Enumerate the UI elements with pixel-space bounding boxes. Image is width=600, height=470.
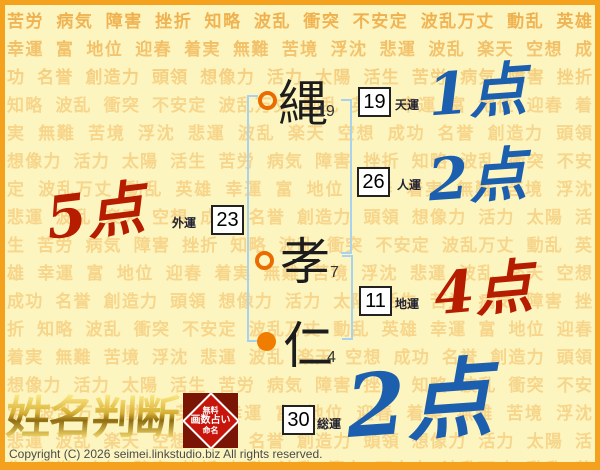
chiun-score: 4点 [432,257,535,323]
free-service-badge: 無料 画数占い 命名 [183,393,238,448]
chiun-label: 地運 [395,295,419,312]
copyright-text: Copyright (C) 2026 seimei.linkstudio.biz… [9,447,322,461]
chiun-bracket-line [342,255,353,340]
seimei-handan-result-page: 苦労 病気 障害 挫折 知略 波乱 衝突 不安定 波乱万丈 動乱 英雄 幸運 富… [0,0,600,470]
chiun-value-box: 11 [359,286,392,316]
badge-line-free: 無料 [203,406,219,415]
name-char-2: 孝 [280,237,330,287]
souun-value-box: 30 [282,405,315,435]
tenun-score: 1点 [426,60,528,125]
badge-line-meimei: 命名 [203,426,219,435]
char-marker-2 [255,251,274,270]
gaiun-label: 外運 [172,214,196,231]
tenun-label: 天運 [395,96,419,113]
gaiun-score: 5点 [43,178,148,248]
char-marker-1 [258,91,277,110]
souun-label: 総運 [317,415,341,432]
souun-score: 2点 [343,355,494,451]
jinun-score: 2点 [426,145,528,210]
jinun-value-box: 26 [357,167,390,197]
char-marker-3 [257,332,276,351]
jinun-bracket-line [341,99,352,254]
jinun-label: 人運 [397,176,421,193]
site-logo[interactable]: 姓名判断 [4,393,179,443]
stroke-count-1: 19 [317,103,335,121]
name-char-3: 仁 [283,321,333,371]
stroke-count-2: 7 [330,264,339,282]
stroke-count-3: 4 [327,349,336,367]
gaiun-value-box: 23 [211,205,244,235]
tenun-value-box: 19 [358,87,391,117]
badge-line-kakusuuranai: 画数占い [191,415,231,427]
gaiun-bracket-line [247,95,258,342]
